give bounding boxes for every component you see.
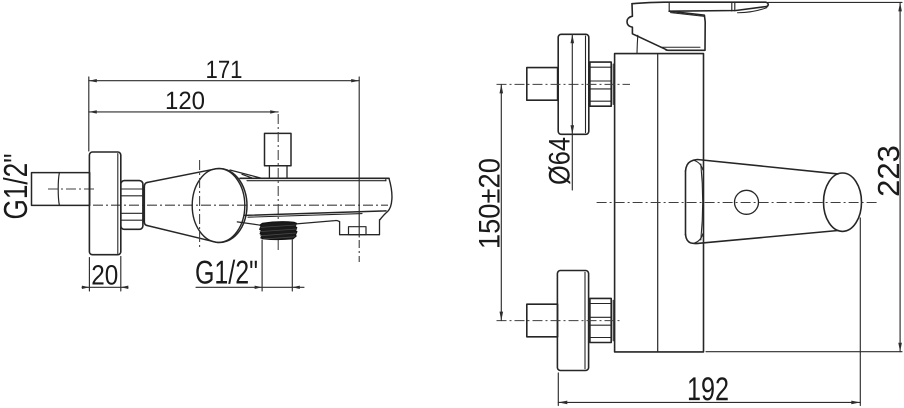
- svg-text:150±20: 150±20: [474, 158, 507, 249]
- svg-text:171: 171: [205, 56, 242, 84]
- svg-text:G1/2": G1/2": [195, 253, 258, 290]
- svg-text:G1/2": G1/2": [0, 154, 34, 220]
- svg-text:Ø64: Ø64: [544, 137, 577, 185]
- svg-text:223: 223: [871, 145, 904, 197]
- svg-text:20: 20: [91, 259, 118, 290]
- svg-text:192: 192: [687, 370, 729, 407]
- svg-text:120: 120: [165, 87, 205, 115]
